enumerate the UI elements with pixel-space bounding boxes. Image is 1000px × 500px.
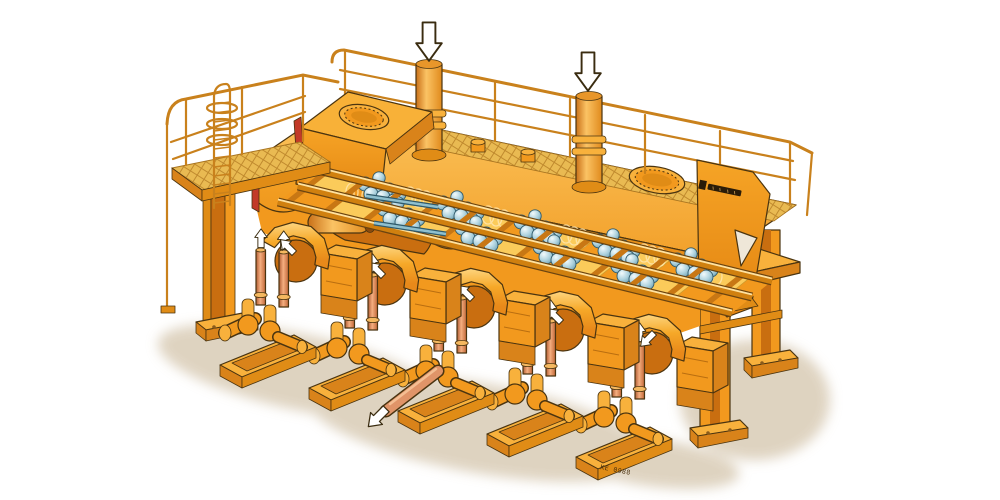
inlet-arrow-1 bbox=[416, 22, 442, 60]
accumulator-2 bbox=[572, 92, 606, 194]
ladder-cage-hoop bbox=[207, 135, 237, 145]
rail-post-foot bbox=[161, 306, 175, 313]
inlet-arrow-2 bbox=[575, 52, 601, 90]
platform-column bbox=[203, 190, 211, 330]
machine-illustration: KE 0988 bbox=[0, 0, 1000, 500]
